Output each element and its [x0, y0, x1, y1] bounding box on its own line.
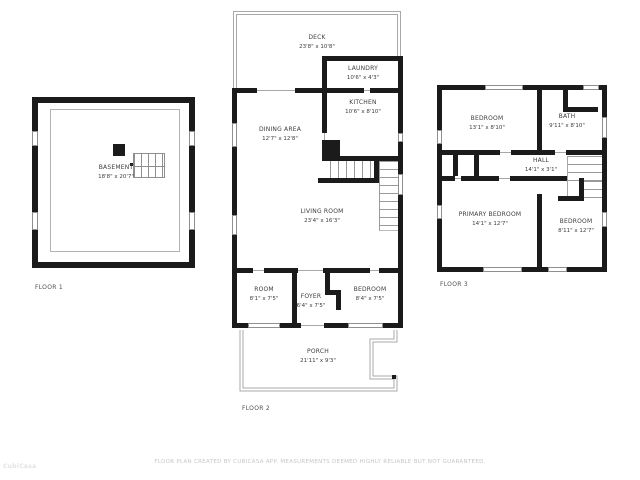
floor2-chimney	[322, 140, 340, 156]
room-name: PORCH	[300, 349, 336, 355]
floor2-stairs-lower-run	[379, 161, 398, 231]
wall-segment	[442, 176, 453, 181]
window-marker	[32, 212, 38, 230]
wall-segment	[232, 268, 251, 273]
label-kitchen: KITCHEN 10'6" x 8'10"	[345, 100, 381, 115]
floor3-label: FLOOR 3	[440, 281, 468, 288]
wall-segment	[325, 268, 368, 273]
wall-segment	[381, 268, 403, 273]
wall-segment	[463, 176, 497, 181]
wall-segment	[322, 93, 327, 133]
room-dims: 9'11" x 8'10"	[549, 123, 585, 129]
label-laundry: LAUNDRY 10'6" x 4'3"	[347, 66, 379, 81]
door-opening	[368, 268, 381, 273]
room-dims: 14'1" x 12'7"	[459, 221, 522, 227]
wall-segment	[442, 150, 498, 155]
window-marker	[485, 85, 523, 90]
label-bedroom-top: BEDROOM 13'1" x 8'10"	[469, 116, 505, 131]
window-marker	[232, 123, 237, 147]
label-foyer: FOYER 6'4" x 7'5"	[297, 294, 326, 309]
room-dims: 8'11" x 12'7"	[558, 228, 594, 234]
door-opening	[296, 268, 325, 273]
stair-divider-line	[134, 166, 164, 167]
room-dims: 6'4" x 7'5"	[297, 303, 326, 309]
room-name: LIVING ROOM	[300, 209, 343, 215]
thin-line	[567, 156, 568, 196]
door-opening	[498, 150, 513, 155]
room-name: FOYER	[297, 294, 326, 300]
window-marker	[548, 267, 567, 272]
room-dims: 23'8" x 10'8"	[299, 44, 335, 50]
window-marker	[398, 133, 403, 142]
label-dining-area: DINING AREA 12'7" x 12'8"	[259, 127, 301, 142]
room-name: BEDROOM	[354, 287, 387, 293]
window-marker	[232, 215, 237, 235]
room-dims: 18'8" x 20'7"	[98, 174, 134, 180]
wall-segment	[537, 90, 542, 155]
basement-staircase	[133, 153, 165, 178]
wall-segment	[297, 88, 322, 93]
wall-segment	[453, 155, 458, 176]
door-opening	[362, 88, 372, 93]
label-bath: BATH 9'11" x 8'10"	[549, 114, 585, 129]
wall-segment	[537, 194, 542, 267]
door-opening	[255, 88, 297, 93]
wall-segment	[322, 56, 327, 88]
window-marker	[398, 174, 403, 195]
room-name: KITCHEN	[345, 100, 381, 106]
basement-interior-outline	[50, 109, 180, 252]
room-name: DECK	[299, 35, 335, 41]
label-porch: PORCH 21'11" x 9'3"	[300, 349, 336, 364]
window-marker	[602, 117, 607, 138]
wall-segment	[336, 295, 341, 310]
window-marker	[483, 267, 522, 272]
room-dims: 8'1" x 7'5"	[250, 296, 279, 302]
corner-marker	[392, 375, 396, 379]
window-marker	[583, 85, 599, 90]
wall-segment	[398, 56, 403, 88]
basement-chimney	[113, 144, 125, 156]
label-hall: HALL 14'1" x 3'1"	[525, 158, 557, 173]
floor2-label: FLOOR 2	[242, 405, 270, 412]
wall-segment	[579, 178, 584, 201]
room-dims: 12'7" x 12'8"	[259, 136, 301, 142]
room-dims: 8'4" x 7'5"	[354, 296, 387, 302]
window-marker	[189, 212, 195, 230]
label-primary-bedroom: PRIMARY BEDROOM 14'1" x 12'7"	[459, 212, 522, 227]
label-basement: BASEMENT 18'8" x 20'7"	[98, 165, 134, 180]
floor-plan-sheet: BASEMENT 18'8" x 20'7" FLOOR 1 DECK 23'8…	[0, 0, 640, 480]
room-dims: 23'4" x 16'3"	[300, 218, 343, 224]
label-living-room: LIVING ROOM 23'4" x 16'3"	[300, 209, 343, 224]
wall-segment	[512, 176, 568, 181]
wall-segment	[398, 88, 403, 328]
label-bedroom-right: BEDROOM 8'11" x 12'7"	[558, 219, 594, 234]
door-opening	[251, 268, 266, 273]
room-name: HALL	[525, 158, 557, 164]
room-dims: 10'6" x 4'3"	[347, 75, 379, 81]
floor1-label: FLOOR 1	[35, 284, 63, 291]
room-name: PRIMARY BEDROOM	[459, 212, 522, 218]
door-opening	[453, 176, 463, 181]
wall-segment	[322, 88, 362, 93]
window-marker	[437, 205, 442, 219]
wall-segment	[322, 56, 403, 61]
room-name: BEDROOM	[558, 219, 594, 225]
window-marker	[189, 131, 195, 146]
wall-segment	[474, 155, 479, 176]
floor3-stairs-lower	[584, 181, 602, 202]
window-marker	[602, 212, 607, 227]
label-deck: DECK 23'8" x 10'8"	[299, 35, 335, 50]
room-name: LAUNDRY	[347, 66, 379, 72]
window-marker	[437, 130, 442, 144]
disclaimer-text: FLOOR PLAN CREATED BY CUBICASA APP. MEAS…	[0, 459, 640, 465]
label-room: ROOM 8'1" x 7'5"	[250, 287, 279, 302]
room-name: BATH	[549, 114, 585, 120]
room-name: DINING AREA	[259, 127, 301, 133]
floor3-stairs-upper	[568, 156, 602, 181]
room-dims: 13'1" x 8'10"	[469, 125, 505, 131]
room-dims: 14'1" x 3'1"	[525, 167, 557, 173]
room-dims: 10'6" x 8'10"	[345, 109, 381, 115]
label-bedroom-floor2: BEDROOM 8'4" x 7'5"	[354, 287, 387, 302]
wall-segment	[563, 107, 598, 112]
wall-segment	[568, 150, 602, 155]
room-dims: 21'11" x 9'3"	[300, 358, 336, 364]
thin-line	[324, 133, 325, 140]
door-opening	[553, 150, 568, 155]
wall-segment	[513, 150, 553, 155]
floor2-stairs-upper-run	[330, 161, 374, 178]
window-marker	[32, 131, 38, 146]
cubicasa-watermark: CubiCasa	[3, 463, 37, 470]
door-opening	[497, 176, 512, 181]
room-name: ROOM	[250, 287, 279, 293]
wall-segment	[318, 178, 379, 183]
room-name: BASEMENT	[98, 165, 134, 171]
room-name: BEDROOM	[469, 116, 505, 122]
